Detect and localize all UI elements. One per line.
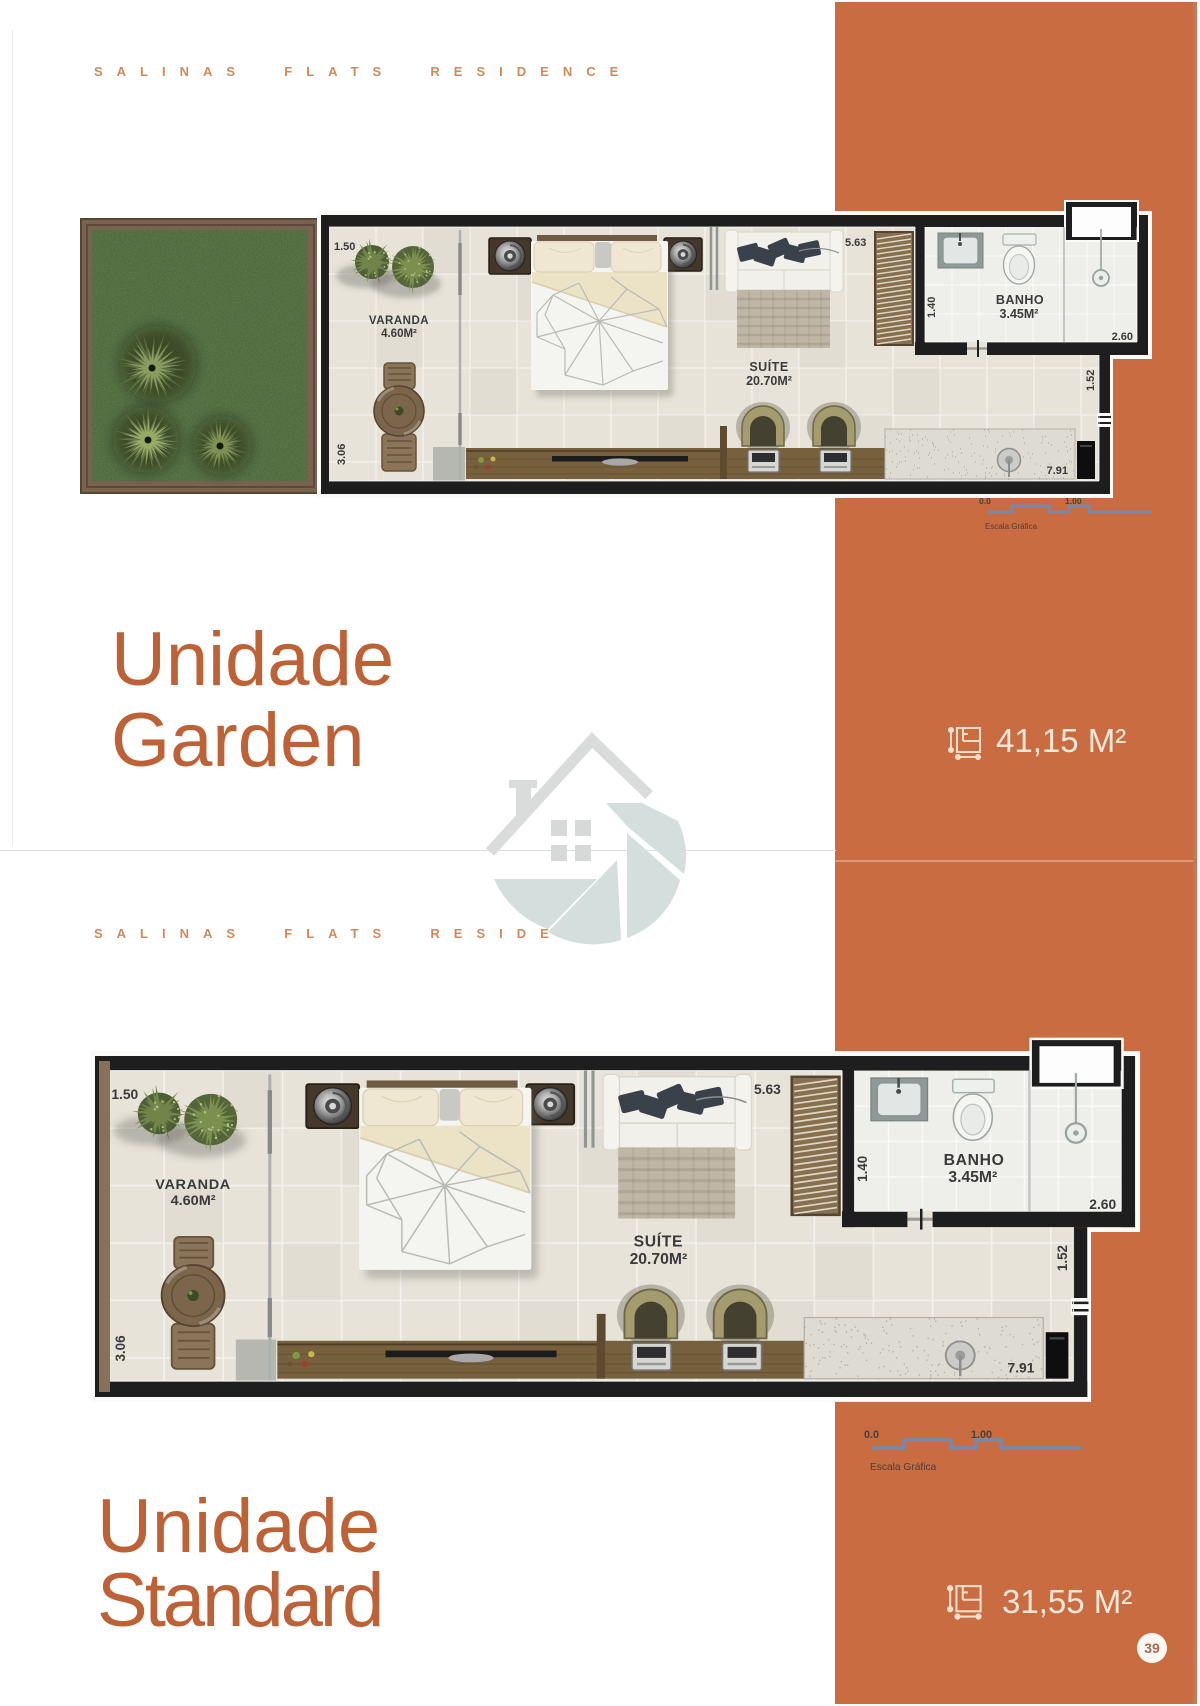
svg-text:39: 39 (1144, 1640, 1160, 1656)
svg-text:0.0: 0.0 (864, 1429, 879, 1441)
svg-text:Escala Gráfica: Escala Gráfica (870, 1462, 937, 1473)
svg-text:Escala Gráfica: Escala Gráfica (985, 522, 1038, 531)
svg-text:0.0: 0.0 (979, 496, 991, 506)
